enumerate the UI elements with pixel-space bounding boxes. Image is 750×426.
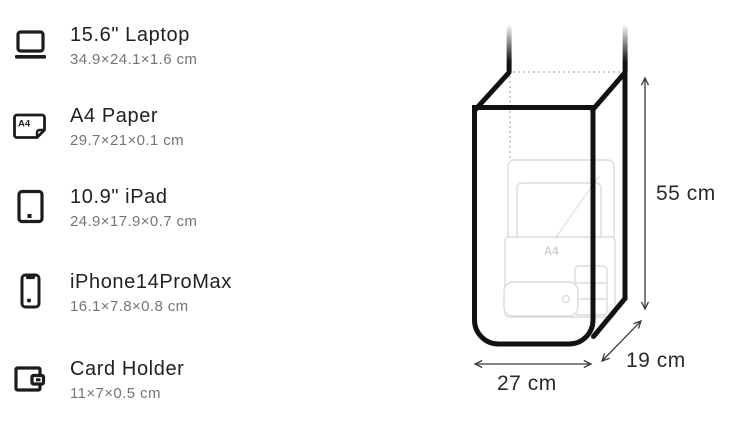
bag-size-infographic: 15.6" Laptop 34.9×24.1×1.6 cm A4 A4 Pape… <box>0 0 750 426</box>
ghost-iphone <box>504 282 578 316</box>
width-dimension-label: 27 cm <box>497 372 557 396</box>
bag-contents-ghost <box>504 160 615 317</box>
depth-dimension-label: 19 cm <box>626 349 686 373</box>
hidden-edges-dotted <box>510 72 622 158</box>
a4-watermark: A4 <box>544 246 559 258</box>
height-dimension-label: 55 cm <box>656 182 716 206</box>
bag-straps <box>507 24 628 72</box>
